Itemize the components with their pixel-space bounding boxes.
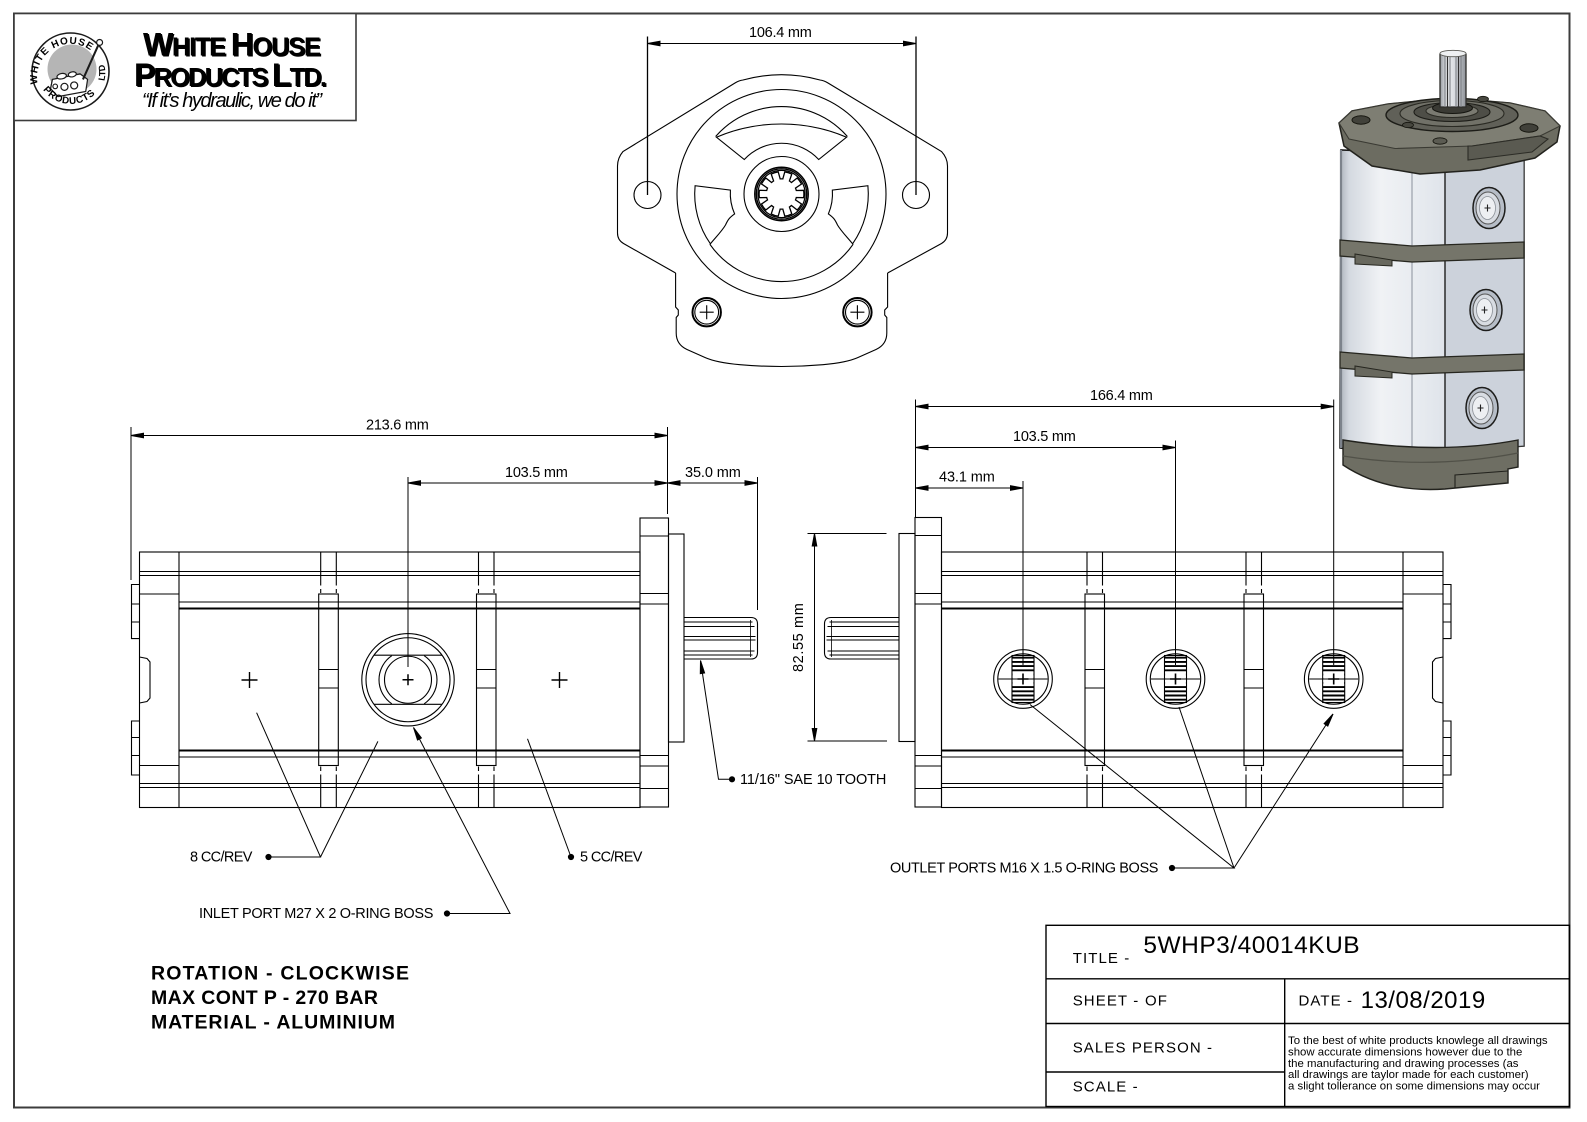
svg-text:SHEET -: SHEET - — [1073, 992, 1140, 1009]
svg-text:OF: OF — [1145, 992, 1168, 1009]
svg-text:82.55 mm: 82.55 mm — [791, 602, 807, 672]
svg-text:11/16" SAE 10 TOOTH: 11/16" SAE 10 TOOTH — [740, 772, 888, 788]
svg-text:TITLE -: TITLE - — [1073, 950, 1131, 967]
svg-text:all drawings are taylor made f: all drawings are taylor made for each cu… — [1288, 1069, 1529, 1081]
svg-text:103.5 mm: 103.5 mm — [505, 465, 569, 481]
svg-text:35.0 mm: 35.0 mm — [685, 465, 742, 481]
svg-text:13/08/2019: 13/08/2019 — [1361, 987, 1486, 1014]
svg-text:SCALE -: SCALE - — [1073, 1078, 1139, 1095]
svg-text:166.4 mm: 166.4 mm — [1090, 388, 1154, 404]
svg-text:the manufacturing and drawing: the manufacturing and drawing processes … — [1288, 1058, 1519, 1070]
svg-text:To the best of white products: To the best of white products knowlege a… — [1288, 1035, 1548, 1047]
svg-text:MATERIAL - ALUMINIUM: MATERIAL - ALUMINIUM — [151, 1012, 395, 1034]
svg-text:show accurate dimensions howev: show accurate dimensions however due to … — [1288, 1046, 1522, 1058]
svg-text:43.1 mm: 43.1 mm — [939, 470, 996, 486]
svg-text:213.6 mm: 213.6 mm — [366, 418, 430, 434]
svg-text:“If it’s hydraulic, we do it”: “If it’s hydraulic, we do it” — [142, 90, 323, 112]
svg-text:OUTLET PORTS M16 X 1.5 O-RING: OUTLET PORTS M16 X 1.5 O-RING BOSS — [890, 861, 1160, 877]
svg-text:103.5 mm: 103.5 mm — [1013, 429, 1077, 445]
svg-text:a slight tollerance on some di: a slight tollerance on some dimensions m… — [1288, 1081, 1540, 1093]
svg-text:LTD: LTD — [96, 64, 107, 82]
svg-text:DATE -: DATE - — [1299, 992, 1354, 1009]
svg-text:INLET PORT M27 X 2 O-RING BOSS: INLET PORT M27 X 2 O-RING BOSS — [199, 906, 435, 922]
svg-text:106.4 mm: 106.4 mm — [749, 25, 813, 41]
svg-text:8 CC/REV: 8 CC/REV — [190, 850, 254, 866]
svg-text:5WHP3/40014KUB: 5WHP3/40014KUB — [1143, 932, 1360, 959]
svg-text:5 CC/REV: 5 CC/REV — [580, 850, 644, 866]
svg-text:ROTATION - CLOCKWISE: ROTATION - CLOCKWISE — [151, 963, 409, 985]
svg-text:MAX CONT P - 270 BAR: MAX CONT P - 270 BAR — [151, 987, 378, 1009]
svg-text:SALES PERSON -: SALES PERSON - — [1073, 1040, 1213, 1057]
